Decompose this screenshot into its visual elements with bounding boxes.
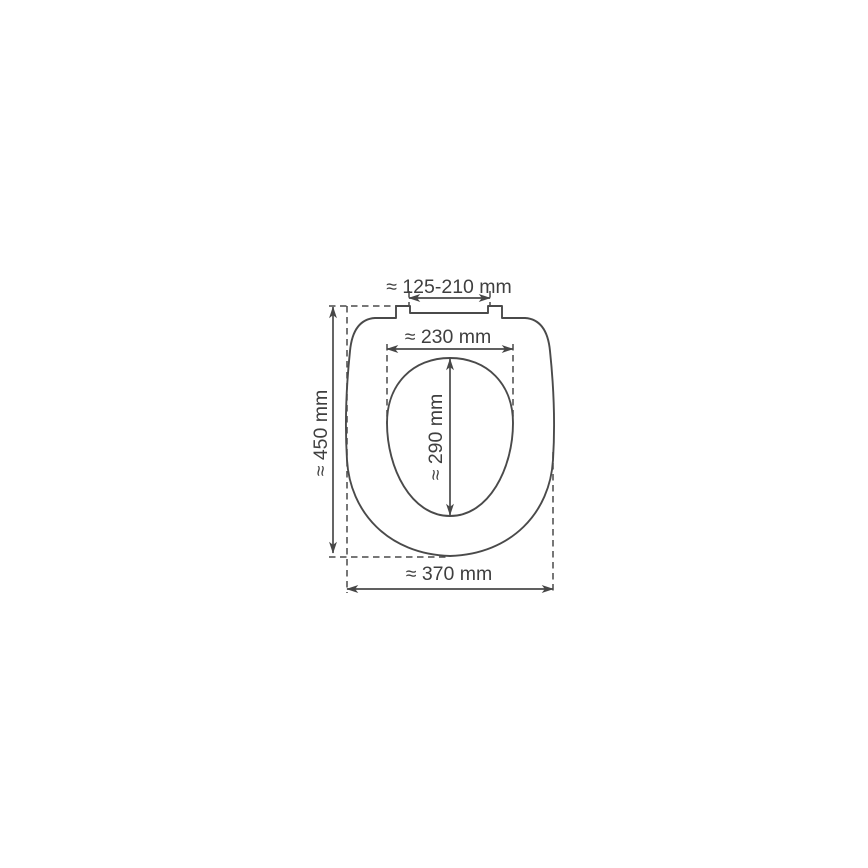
toilet-seat-dimension-diagram: ≈ 125-210 mm ≈ 230 mm ≈ 290 mm ≈ 450 mm … — [0, 0, 868, 868]
dimension-label-hinge-spacing: ≈ 125-210 mm — [386, 276, 512, 298]
dimension-label-overall-length: ≈ 450 mm — [310, 390, 332, 477]
product-dimension-image: ≈ 125-210 mm ≈ 230 mm ≈ 290 mm ≈ 450 mm … — [0, 0, 868, 868]
diagram-labels: ≈ 125-210 mm ≈ 230 mm ≈ 290 mm ≈ 450 mm … — [310, 276, 512, 585]
dimension-label-overall-width: ≈ 370 mm — [406, 563, 493, 585]
dimension-label-inner-width: ≈ 230 mm — [405, 326, 492, 348]
dimension-label-inner-length: ≈ 290 mm — [425, 394, 447, 481]
